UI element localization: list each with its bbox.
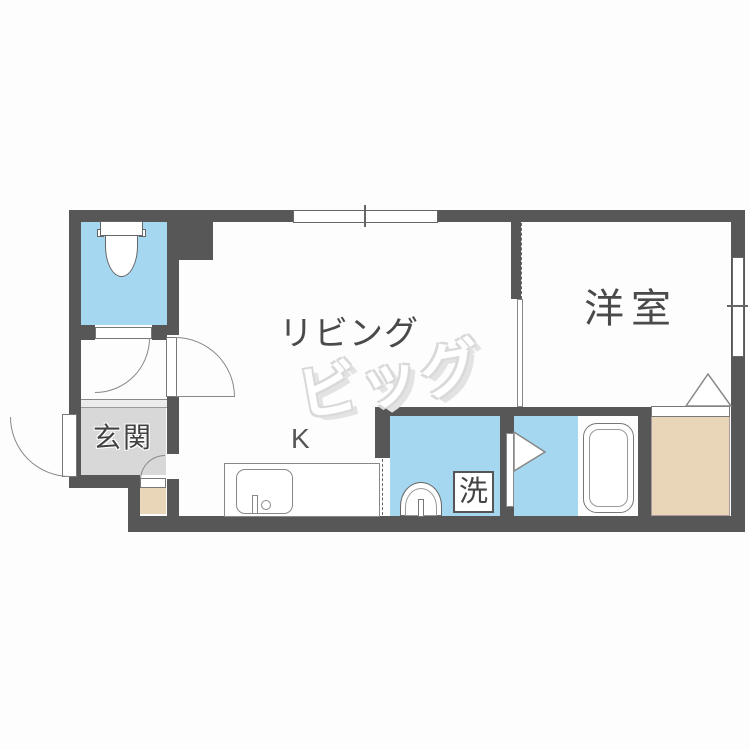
bathroom-floor (514, 415, 578, 516)
living-room-label: リビング (279, 317, 419, 351)
kitchen-label: K (291, 425, 310, 453)
toilet-door-swing (95, 338, 150, 393)
bathtub-inner (589, 429, 628, 507)
wall-bath-divider-stub-bottom (500, 506, 514, 516)
bath-fold-door-bar (506, 433, 514, 507)
laundry-box: 洗 (453, 471, 494, 513)
partition-dashed-opening (521, 223, 522, 299)
entrance-label: 玄関 (93, 424, 153, 452)
hall-living-door-swing (175, 337, 235, 397)
western-room-label: 洋室 (584, 289, 678, 329)
toilet-tank (100, 221, 143, 236)
western-room-window-mullion (727, 305, 748, 307)
western-room-window (732, 257, 744, 357)
wall-tub-closet (638, 415, 651, 516)
wall-bath-divider-stub-top (500, 415, 514, 433)
storage-door-leaf (140, 478, 166, 488)
wall-corner-block (167, 210, 213, 260)
living-window (293, 210, 438, 223)
closet-floor (651, 416, 730, 516)
entrance-storage-floor (140, 488, 166, 514)
washroom-entry-dashed (382, 459, 383, 515)
wall-bottom (128, 516, 745, 532)
wall-hall-column-lower (167, 479, 179, 519)
wall-storage-left-stub (128, 483, 140, 519)
laundry-label: 洗 (459, 478, 488, 507)
closet-triangle-marker (686, 374, 731, 406)
living-window-mullion (364, 205, 366, 227)
faucet-knob (261, 500, 271, 510)
washbasin-handle (418, 499, 424, 517)
entrance-step (81, 399, 167, 408)
faucet-stem (252, 495, 258, 514)
wall-hall-column-mid (167, 397, 179, 454)
wall-partition-stub (511, 221, 521, 299)
wall-toilet-stub-left (69, 325, 95, 340)
closet-front-bar (651, 406, 730, 417)
partition-thin-wall (517, 299, 523, 407)
floor-plan: ビッグ リビング 洋室 玄関 K 洗 (0, 0, 750, 750)
entrance-door-swing (10, 417, 70, 477)
wall-hall-column-upper (167, 258, 179, 335)
wall-toilet-stub-right (152, 325, 167, 340)
